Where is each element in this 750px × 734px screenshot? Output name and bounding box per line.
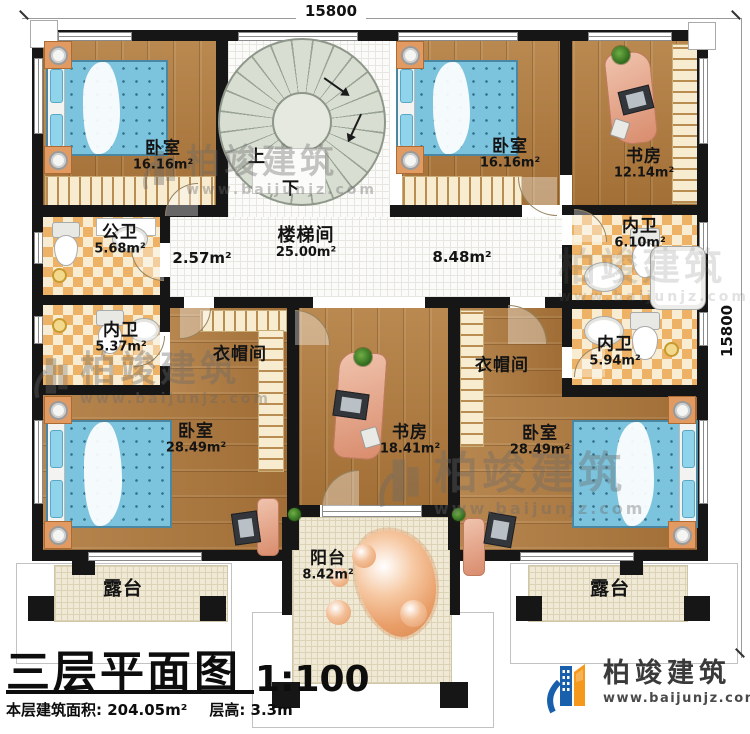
column: [440, 682, 468, 708]
room-label-terrace-left: 露台: [103, 579, 143, 600]
window: [588, 32, 672, 41]
plant-icon: [452, 508, 465, 521]
room-label-cloak-left: 衣帽间: [213, 346, 267, 365]
room-area: 16.16m²: [480, 156, 540, 170]
nightstand: [668, 396, 696, 424]
sink-icon: [584, 262, 624, 292]
room-label-study-bm: 书房 18.41m²: [380, 424, 440, 457]
window: [88, 552, 202, 561]
lamp-icon: [49, 526, 68, 545]
nightstand: [396, 41, 424, 69]
room-label-terrace-right: 露台: [590, 579, 630, 600]
room-name: 阳台: [310, 550, 346, 569]
room-area: 28.49m²: [166, 441, 226, 455]
dimension-line-top: [22, 18, 740, 19]
lamp-icon: [401, 46, 420, 65]
room-name: 衣帽间: [475, 357, 529, 376]
closet-rail: [460, 310, 484, 447]
company-url: www.baijunjz.com: [603, 691, 750, 706]
closet-rail: [200, 310, 287, 332]
tv-stand: [257, 498, 279, 556]
wall-segment: [282, 517, 292, 615]
pebble: [400, 600, 427, 627]
towel-hook-icon: [664, 342, 679, 357]
room-label-study-tr: 书房 12.14m²: [614, 148, 674, 181]
room-label-balcony: 阳台 8.42m²: [302, 550, 353, 583]
bed-sheet: [616, 422, 654, 526]
dimension-line-right: [741, 18, 742, 658]
building-area-label: 本层建筑面积: 204.05m²: [6, 699, 187, 720]
wall-segment: [562, 309, 572, 347]
room-label-bath-left: 内卫 5.37m²: [95, 322, 146, 355]
room-name: 卧室: [145, 140, 181, 159]
title-block: 三层平面图 1:100: [6, 636, 370, 700]
pillow: [400, 114, 413, 147]
room-area: 8.42m²: [302, 568, 353, 582]
staircase-hub: [272, 92, 332, 152]
plant-icon: [288, 508, 301, 521]
closet-rail: [672, 44, 698, 204]
stair-up-label: 上: [248, 142, 265, 167]
bed: [46, 420, 172, 528]
column: [28, 596, 54, 621]
computer-monitor-icon: [332, 390, 369, 420]
company-name: 柏竣建筑: [603, 660, 750, 687]
toilet-bowl: [54, 235, 78, 266]
bed-headboard: [48, 62, 65, 154]
wall-segment: [425, 297, 510, 308]
pillow: [682, 480, 695, 517]
room-label-bath-right: 内卫 5.94m²: [589, 336, 640, 369]
room-name: 内卫: [597, 336, 633, 355]
room-area: 2.57m²: [172, 250, 231, 267]
room-label-hall-small: 2.57m²: [172, 250, 231, 267]
wall-segment: [32, 385, 170, 395]
room-name: 书房: [626, 148, 662, 167]
window: [520, 552, 634, 561]
door-arc: [518, 177, 557, 216]
room-area: 5.68m²: [94, 242, 145, 256]
window: [34, 232, 43, 264]
room-label-hall-main: 8.48m²: [432, 249, 491, 266]
pillow: [682, 430, 695, 467]
room-label-bedroom-tm: 卧室 16.16m²: [480, 138, 540, 171]
lamp-icon: [49, 151, 68, 170]
wall-segment: [160, 217, 170, 243]
wall-segment: [32, 205, 228, 217]
lamp-icon: [49, 401, 68, 420]
monitor-screen: [626, 91, 647, 108]
bed-headboard: [398, 62, 415, 154]
room-label-cloak-right: 衣帽间: [475, 357, 529, 376]
nightstand: [44, 521, 72, 549]
nightstand: [44, 41, 72, 69]
room-name: 卧室: [492, 138, 528, 157]
toilet-icon: [52, 222, 78, 264]
room-area: 6.10m²: [614, 236, 665, 250]
bathtub-icon: [650, 246, 706, 310]
room-name: 卧室: [178, 423, 214, 442]
wall-stub: [620, 561, 643, 575]
plan-info: 本层建筑面积: 204.05m² 层高: 3.3m: [6, 699, 293, 720]
plan-scale: 1:100: [255, 659, 370, 700]
room-area: 25.00m²: [276, 246, 336, 260]
wall-segment: [560, 30, 572, 175]
room-area: 5.37m²: [95, 340, 146, 354]
monitor-screen: [340, 397, 361, 414]
wall-stub: [72, 561, 95, 575]
plant-icon: [354, 348, 372, 366]
window: [34, 316, 43, 344]
bed: [572, 420, 698, 528]
room-area: 12.14m²: [614, 166, 674, 180]
window: [699, 58, 708, 144]
tv-icon: [483, 512, 516, 548]
room-area: 18.41m²: [380, 442, 440, 456]
room-label-bedroom-bl: 卧室 28.49m²: [166, 423, 226, 456]
room-label-bath-public: 公卫 5.68m²: [94, 224, 145, 257]
room-name: 公卫: [102, 224, 138, 243]
corner-marker: [688, 22, 716, 50]
stair-down-label: 下: [282, 174, 299, 199]
pillow: [50, 114, 63, 147]
towel-hook-icon: [52, 268, 67, 283]
room-name: 内卫: [622, 218, 658, 237]
lamp-icon: [49, 46, 68, 65]
room-name: 露台: [103, 579, 143, 600]
room-label-bedroom-br: 卧室 28.49m²: [510, 425, 570, 458]
wall-segment: [214, 297, 313, 308]
monitor-screen: [491, 520, 509, 540]
lamp-icon: [673, 401, 692, 420]
room-name: 内卫: [103, 322, 139, 341]
towel-hook-icon: [52, 318, 67, 333]
nightstand: [668, 521, 696, 549]
bed-sheet: [84, 422, 122, 526]
company-logo-text: 柏竣建筑 www.baijunjz.com: [603, 660, 750, 706]
wall-segment: [420, 505, 450, 517]
column: [516, 596, 542, 621]
nightstand: [44, 146, 72, 174]
company-logo: 柏竣建筑 www.baijunjz.com: [543, 660, 750, 716]
plant-icon: [612, 46, 630, 64]
room-label-bedroom-tl: 卧室 16.16m²: [133, 140, 193, 173]
pebble: [352, 544, 376, 568]
pebble: [326, 600, 351, 625]
tv-icon: [231, 510, 261, 545]
room-area: 16.16m²: [133, 158, 193, 172]
company-logo-icon: [543, 660, 595, 716]
room-name: 书房: [392, 424, 428, 443]
pillow: [400, 69, 413, 102]
room-name: 衣帽间: [213, 346, 267, 365]
pillow: [50, 69, 63, 102]
floor-plan-page: 15800 15800: [0, 0, 750, 734]
room-area: 28.49m²: [510, 443, 570, 457]
wall-segment: [562, 378, 572, 397]
bed-sheet: [83, 62, 119, 154]
dimension-top-value: 15800: [296, 2, 366, 20]
wall-segment: [390, 205, 522, 217]
bed-headboard: [48, 422, 65, 526]
bed-sheet: [433, 62, 469, 154]
dimension-right-value: 15800: [718, 296, 736, 366]
plan-title: 三层平面图: [6, 636, 241, 700]
nightstand: [396, 146, 424, 174]
column: [684, 596, 710, 621]
window: [34, 58, 43, 134]
room-area: 8.48m²: [432, 249, 491, 266]
room-label-stairwell: 楼梯间 25.00m²: [276, 226, 336, 260]
room-area: 5.94m²: [589, 354, 640, 368]
pillow: [50, 430, 63, 467]
wall-segment: [545, 297, 562, 308]
room-label-bath-tr: 内卫 6.10m²: [614, 218, 665, 251]
room-name: 卧室: [522, 425, 558, 444]
window: [34, 420, 43, 504]
wall-segment: [32, 295, 170, 305]
wall-segment: [170, 297, 184, 308]
room-name: 楼梯间: [278, 226, 335, 246]
nightstand: [44, 396, 72, 424]
tv-stand: [463, 518, 485, 576]
window: [699, 312, 708, 346]
window: [699, 420, 708, 504]
wall-segment: [562, 245, 572, 303]
window: [58, 32, 132, 41]
room-name: 露台: [590, 579, 630, 600]
pillow: [50, 480, 63, 517]
bed-mattress: [65, 422, 170, 526]
column: [200, 596, 226, 621]
floor-height-label: 层高: 3.3m: [209, 699, 292, 720]
lamp-icon: [401, 151, 420, 170]
wall-segment: [450, 517, 460, 615]
bed-headboard: [679, 422, 696, 526]
window: [398, 32, 518, 41]
bed-mattress: [574, 422, 679, 526]
closet-rail: [402, 176, 522, 206]
monitor-screen: [238, 518, 255, 538]
lamp-icon: [673, 526, 692, 545]
